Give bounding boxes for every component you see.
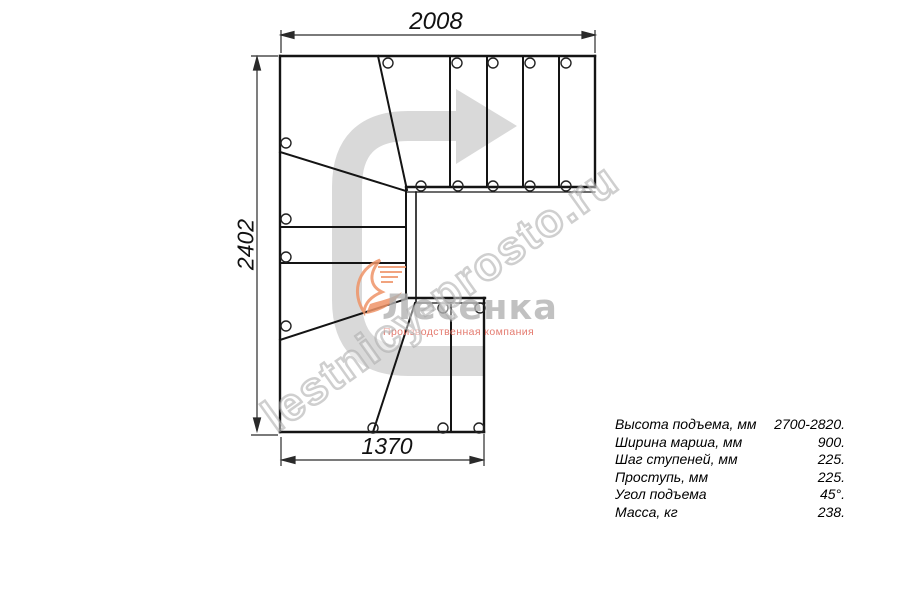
spec-value: 900. — [818, 434, 845, 452]
dimension-bottom-label: 1370 — [341, 433, 433, 460]
spec-row-angle: Угол подъема 45°. — [615, 486, 845, 504]
spec-label: Угол подъема — [615, 486, 707, 504]
spec-label: Высота подъема, мм — [615, 416, 757, 434]
spec-row-step-pitch: Шаг ступеней, мм 225. — [615, 451, 845, 469]
blueprint-page: 2008 2402 1370 Лесенка Производственная … — [0, 0, 900, 600]
spec-value: 225. — [818, 451, 845, 469]
spec-table: Высота подъема, мм 2700-2820. Ширина мар… — [615, 416, 845, 521]
spec-value: 2700-2820. — [774, 416, 845, 434]
spec-row-march-width: Ширина марша, мм 900. — [615, 434, 845, 452]
dimension-top-label: 2008 — [390, 8, 482, 36]
spec-row-mass: Масса, кг 238. — [615, 504, 845, 522]
spec-value: 238. — [818, 504, 845, 522]
spec-label: Проступь, мм — [615, 469, 708, 487]
spec-label: Масса, кг — [615, 504, 678, 522]
spec-value: 45°. — [820, 486, 845, 504]
dimension-left-label: 2402 — [233, 199, 260, 291]
spec-value: 225. — [818, 469, 845, 487]
spec-row-height: Высота подъема, мм 2700-2820. — [615, 416, 845, 434]
spec-label: Шаг ступеней, мм — [615, 451, 738, 469]
spec-row-tread: Проступь, мм 225. — [615, 469, 845, 487]
spec-label: Ширина марша, мм — [615, 434, 742, 452]
